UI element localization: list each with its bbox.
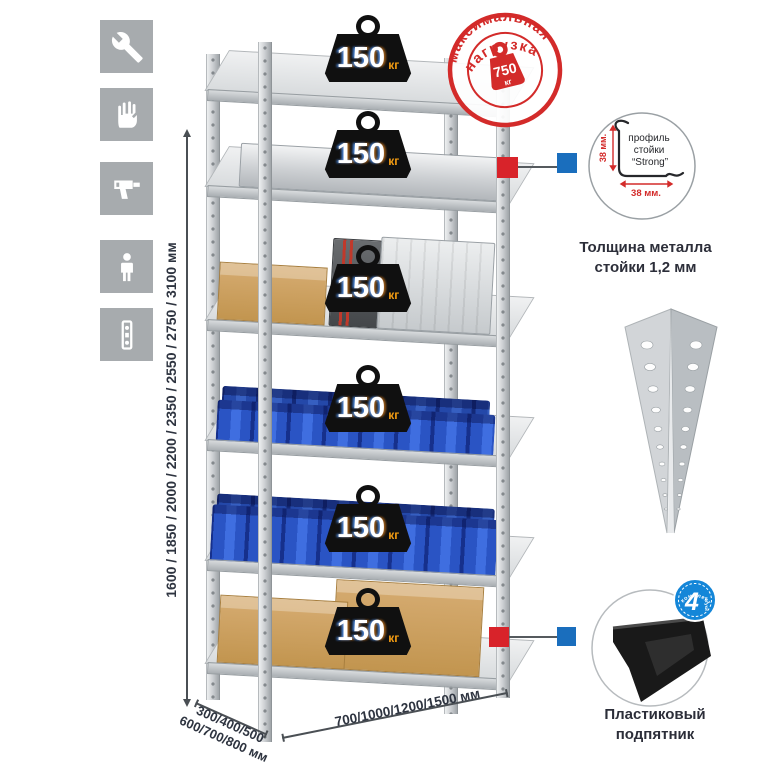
shelf-load-badge: 150кг	[324, 588, 412, 655]
shelf-load-badge: 150кг	[324, 245, 412, 312]
wrench-icon	[100, 20, 153, 73]
upright-post	[258, 42, 272, 742]
profile-label-3: “Strong”	[632, 157, 668, 168]
cardboard-box	[217, 262, 328, 326]
callout-marker-red	[489, 627, 509, 647]
profile-label-2: стойки	[634, 145, 665, 156]
height-dimension-line	[186, 136, 188, 700]
callout-marker-blue	[557, 153, 577, 173]
callout-line	[509, 636, 558, 638]
depth-dimension-label: 300/400/500 600/700/800 мм	[159, 690, 294, 765]
height-dimension-label: 1600 / 1850 / 2000 / 2200 / 2350 / 2550 …	[163, 185, 179, 655]
shelf-load-badge: 150кг	[324, 15, 412, 82]
person-icon	[100, 240, 153, 293]
shelf-load-badge: 150кг	[324, 111, 412, 178]
corner-post-image	[597, 303, 745, 535]
gloves-icon	[100, 88, 153, 141]
profile-detail-circle: 38 мм. 38 мм. профиль стойки “Strong”	[586, 110, 698, 222]
metal-thickness-caption: Толщина металла стойки 1,2 мм	[568, 238, 723, 279]
width-dimension-label: 700/1000/1200/1500 мм	[296, 678, 520, 738]
profile-horizontal-dim: 38 мм.	[631, 188, 661, 199]
shelf-load-badge: 150кг	[324, 365, 412, 432]
perforated-post-icon	[100, 308, 153, 361]
profile-label-1: профиль	[628, 132, 669, 144]
shelf-load-badge: 150кг	[324, 485, 412, 552]
shelving-rack-infographic: 1600 / 1850 / 2000 / 2200 / 2350 / 2550 …	[0, 0, 765, 765]
max-load-stamp: максимальная нагрузка 750 кг	[443, 8, 567, 132]
profile-vertical-dim: 38 мм.	[598, 134, 608, 162]
callout-line	[517, 166, 559, 168]
callout-marker-blue	[557, 627, 576, 646]
drill-icon	[100, 162, 153, 215]
callout-marker-red	[497, 157, 518, 178]
plastic-foot-caption: Пластиковый подпятник	[580, 705, 730, 746]
plastic-foot-circle: 4 штуки в комплекте	[585, 570, 735, 720]
